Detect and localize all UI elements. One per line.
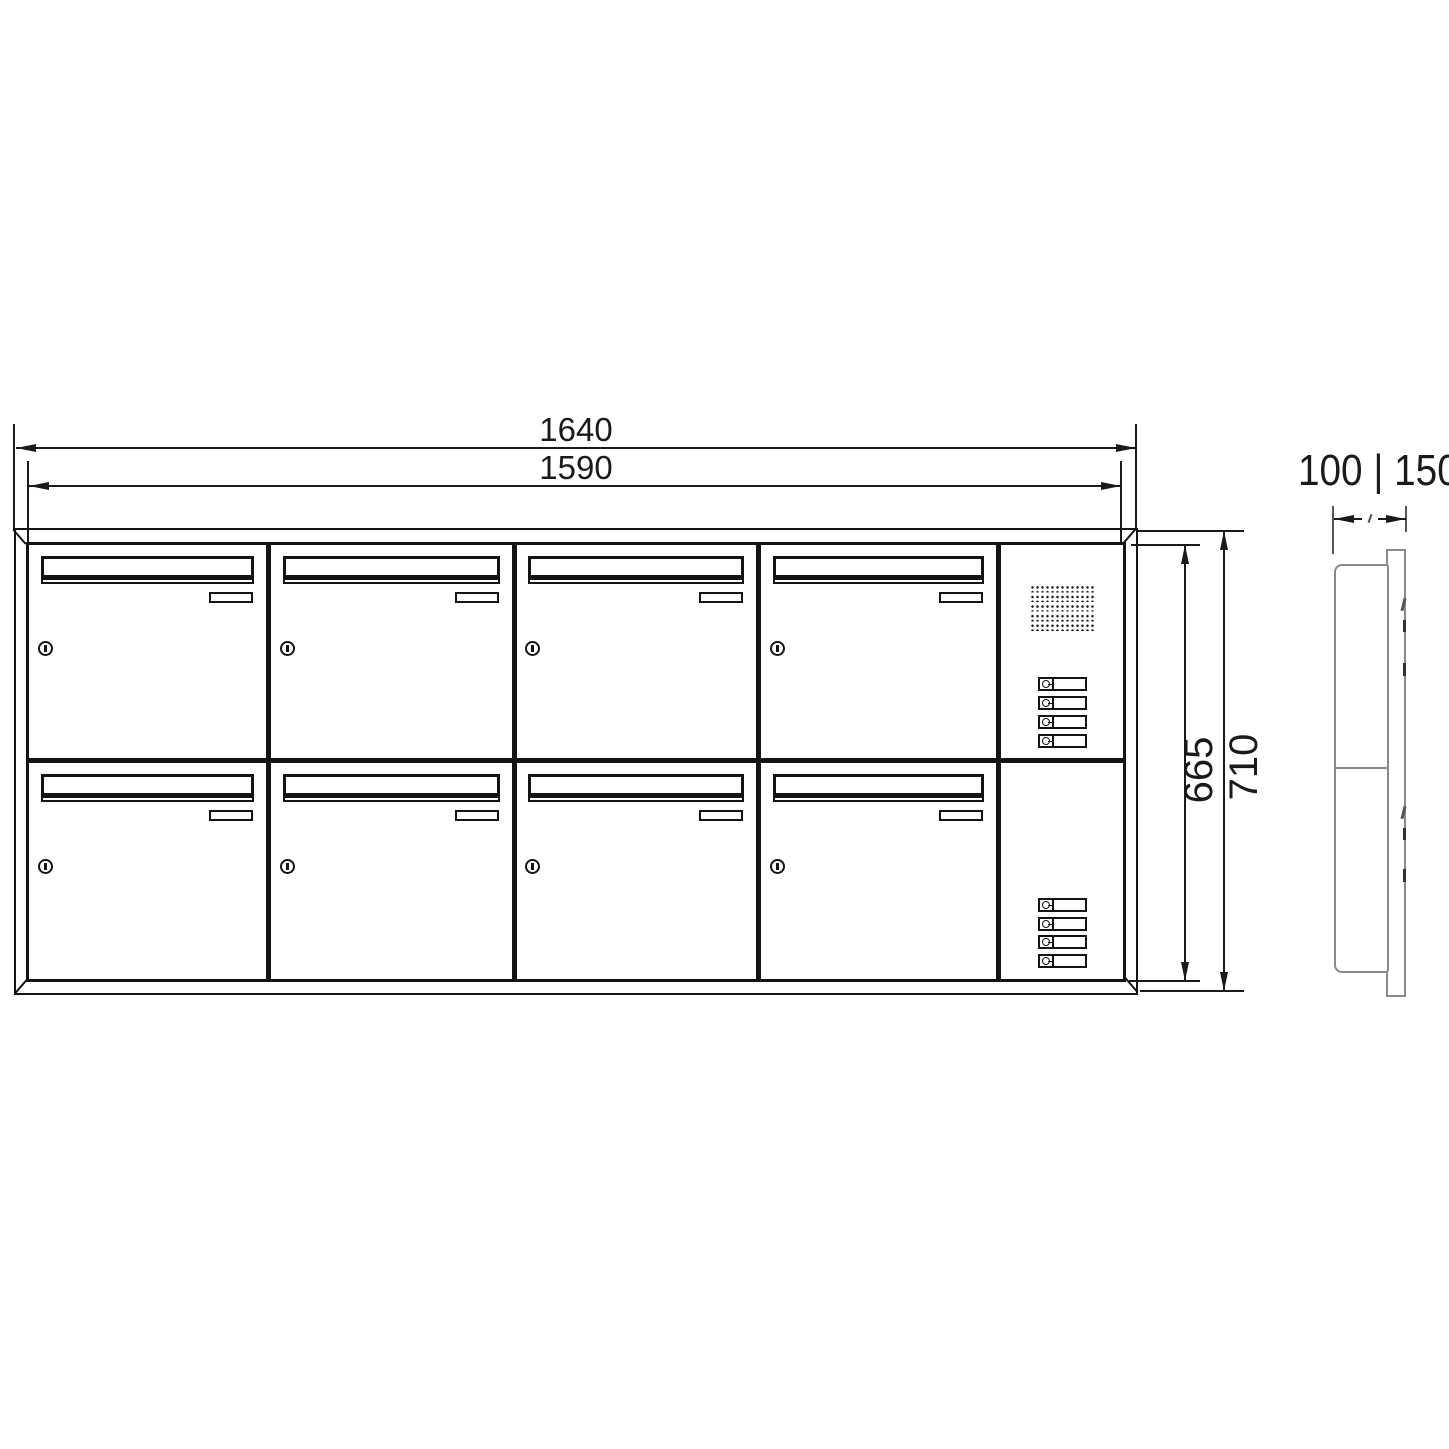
lock-icon xyxy=(770,859,785,874)
arrow-down-icon xyxy=(1220,972,1228,991)
mailbox-door xyxy=(29,545,266,758)
mail-slot xyxy=(283,556,500,578)
speaker-grille-icon xyxy=(1030,585,1095,631)
extension-line xyxy=(1140,990,1244,992)
name-plate xyxy=(939,592,983,603)
arrow-right-icon xyxy=(1386,515,1406,523)
name-plate xyxy=(699,592,743,603)
keyhole-slit xyxy=(531,645,534,652)
side-front-panel xyxy=(1386,549,1406,997)
name-plate xyxy=(455,810,499,821)
mail-slot xyxy=(528,774,744,796)
extension-line xyxy=(1129,980,1200,982)
dim-inner-width-label: 1590 xyxy=(501,451,651,484)
mailbox-door xyxy=(271,545,512,758)
name-plate xyxy=(455,592,499,603)
extension-line xyxy=(13,424,15,530)
mail-slot-flap xyxy=(528,796,744,802)
bell-button xyxy=(1038,734,1087,748)
lock-icon xyxy=(525,859,540,874)
extension-line xyxy=(1131,544,1200,546)
name-plate xyxy=(209,592,253,603)
extension-line xyxy=(1332,506,1334,554)
arrow-right-icon xyxy=(1116,444,1136,452)
keyhole-slit xyxy=(286,863,289,870)
arrow-left-icon xyxy=(1334,515,1354,523)
mail-slot-flap xyxy=(773,796,984,802)
mail-slot-flap xyxy=(283,578,500,584)
name-plate xyxy=(939,810,983,821)
hinge-mark xyxy=(1403,620,1406,632)
keyhole-slit xyxy=(44,863,47,870)
mail-slot xyxy=(41,556,254,578)
arrow-left-icon xyxy=(29,482,49,490)
lock-icon xyxy=(280,641,295,656)
bell-button xyxy=(1038,696,1087,710)
extension-line xyxy=(1135,424,1137,530)
bell-name-divider xyxy=(1052,937,1054,947)
lock-icon xyxy=(280,859,295,874)
bell-button xyxy=(1038,677,1087,691)
bell-name-divider xyxy=(1052,679,1054,689)
bell-button xyxy=(1038,898,1087,912)
bell-button xyxy=(1038,715,1087,729)
mailbox-door xyxy=(271,763,512,979)
dim-outer-width-label: 1640 xyxy=(501,413,651,446)
bell-name-divider xyxy=(1052,717,1054,727)
mailbox-door xyxy=(516,545,756,758)
mail-slot xyxy=(283,774,500,796)
keyhole-slit xyxy=(776,645,779,652)
dim-inner-height-label: 665 xyxy=(1179,710,1219,830)
hinge-mark xyxy=(1403,663,1406,676)
lock-icon xyxy=(38,641,53,656)
dim-outer-height-label: 710 xyxy=(1224,707,1264,827)
mailbox-door xyxy=(29,763,266,979)
bell-name-divider xyxy=(1052,736,1054,746)
mail-slot-flap xyxy=(528,578,744,584)
bell-button xyxy=(1038,917,1087,931)
keyhole-slit xyxy=(531,863,534,870)
mail-slot xyxy=(528,556,744,578)
mail-slot-flap xyxy=(773,578,984,584)
bell-name-divider xyxy=(1052,900,1054,910)
mail-slot xyxy=(773,556,984,578)
mailbox-door xyxy=(761,545,996,758)
mail-slot-flap xyxy=(41,578,254,584)
arrow-right-icon xyxy=(1101,482,1121,490)
mailbox-technical-drawing: 1640 1590 xyxy=(0,0,1449,1449)
mail-slot xyxy=(41,774,254,796)
arrow-up-icon xyxy=(1220,531,1228,550)
depth-options-label: 100 | 150 xyxy=(1298,449,1444,493)
mail-slot-flap xyxy=(283,796,500,802)
arrow-left-icon xyxy=(16,444,36,452)
arrow-up-icon xyxy=(1181,545,1189,564)
side-row-divider xyxy=(1336,767,1387,769)
keyhole-slit xyxy=(776,863,779,870)
mail-slot-flap xyxy=(41,796,254,802)
lock-icon xyxy=(525,641,540,656)
dimension-line-inner-width xyxy=(29,485,1121,487)
bell-name-divider xyxy=(1052,698,1054,708)
dimension-break-tick xyxy=(1368,514,1373,523)
mailbox-door xyxy=(761,763,996,979)
hinge-mark xyxy=(1403,828,1406,840)
extension-line xyxy=(1138,530,1244,532)
mail-slot xyxy=(773,774,984,796)
bell-button xyxy=(1038,935,1087,949)
arrow-down-icon xyxy=(1181,962,1189,981)
bell-name-divider xyxy=(1052,956,1054,966)
bell-button xyxy=(1038,954,1087,968)
lock-icon xyxy=(770,641,785,656)
keyhole-slit xyxy=(44,645,47,652)
mailbox-door xyxy=(516,763,756,979)
keyhole-slit xyxy=(286,645,289,652)
lock-icon xyxy=(38,859,53,874)
name-plate xyxy=(209,810,253,821)
name-plate xyxy=(699,810,743,821)
hinge-mark xyxy=(1403,869,1406,882)
bell-name-divider xyxy=(1052,919,1054,929)
